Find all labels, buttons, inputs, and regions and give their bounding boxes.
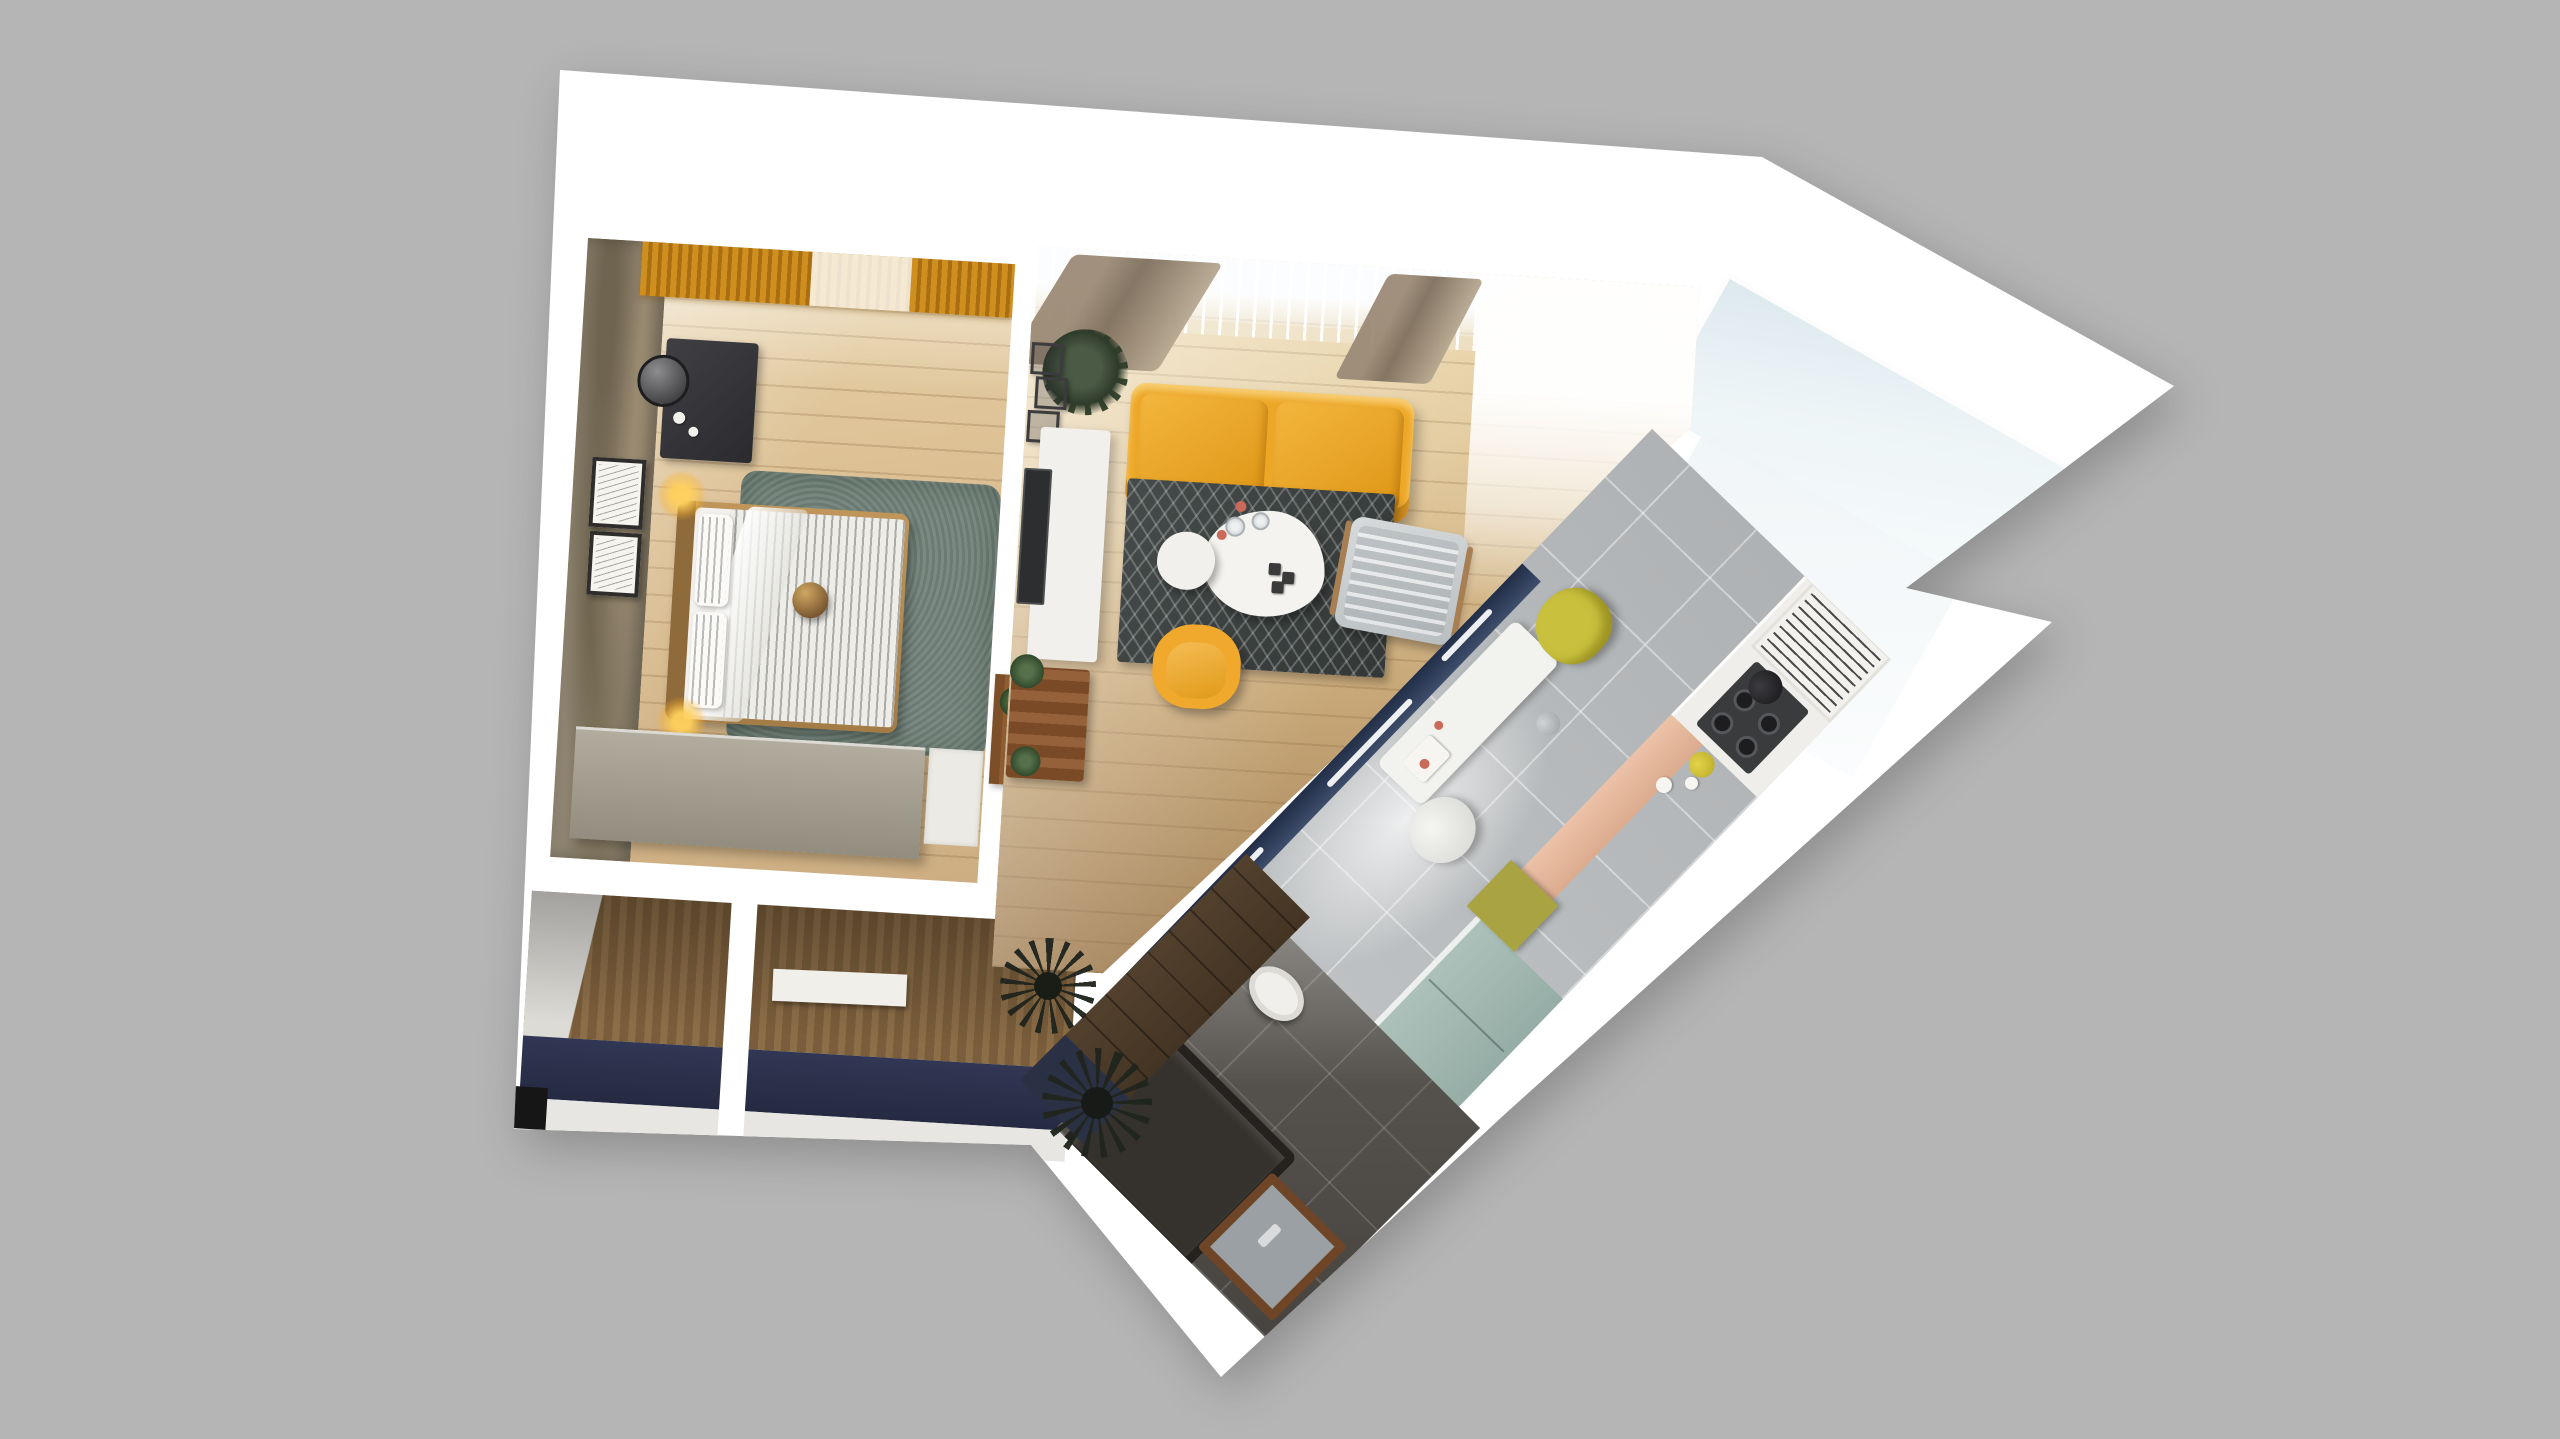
entry-hall [505,890,1078,1162]
bedroom-window-glow [809,252,912,312]
candle-holder [1271,581,1284,594]
cabinet-seam [1428,979,1504,1053]
lounge-stripes [1342,524,1460,637]
burner [1707,708,1738,739]
cube-shelf [1034,376,1068,410]
wardrobe [569,726,925,859]
closet-room [517,891,731,1141]
wall-art-frame [586,531,642,598]
burner [1753,708,1784,739]
floor-plan-render [0,0,2560,1439]
bedroom-white-table [924,748,984,847]
art-sketch [594,538,635,590]
hallway-white-bench [772,969,907,1007]
cube-shelf [1030,342,1064,376]
bed-pillow [688,611,728,709]
art-sketch [596,464,639,522]
fern-plant [1000,938,1096,1034]
armchair-seat [1165,641,1228,701]
burner [1731,731,1762,762]
wall-art-frame [588,457,646,530]
closet-shading [517,891,731,1141]
gray-lounge-chair [1333,515,1469,647]
bed-pillow [694,513,734,607]
pillow-stripes [697,516,730,604]
bedroom [550,238,1015,883]
pillow-stripes [691,614,724,706]
candle-holder [1268,563,1281,576]
